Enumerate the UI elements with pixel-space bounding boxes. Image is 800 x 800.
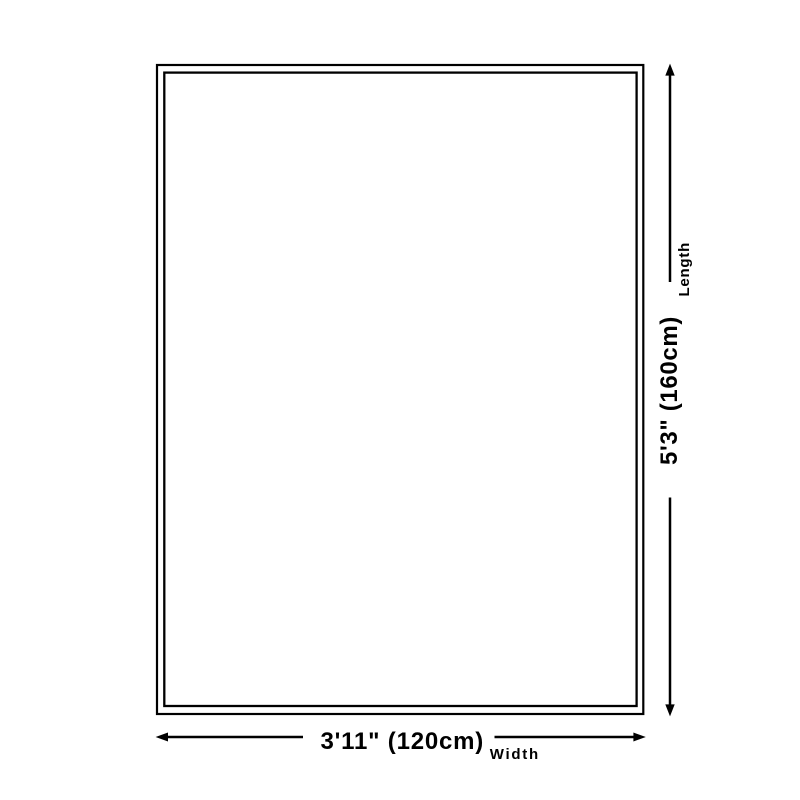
svg-text:Length: Length — [676, 242, 693, 297]
svg-text:5'3" (160cm): 5'3" (160cm) — [656, 316, 683, 465]
svg-text:Width: Width — [490, 746, 540, 763]
svg-text:3'11" (120cm): 3'11" (120cm) — [321, 728, 485, 755]
